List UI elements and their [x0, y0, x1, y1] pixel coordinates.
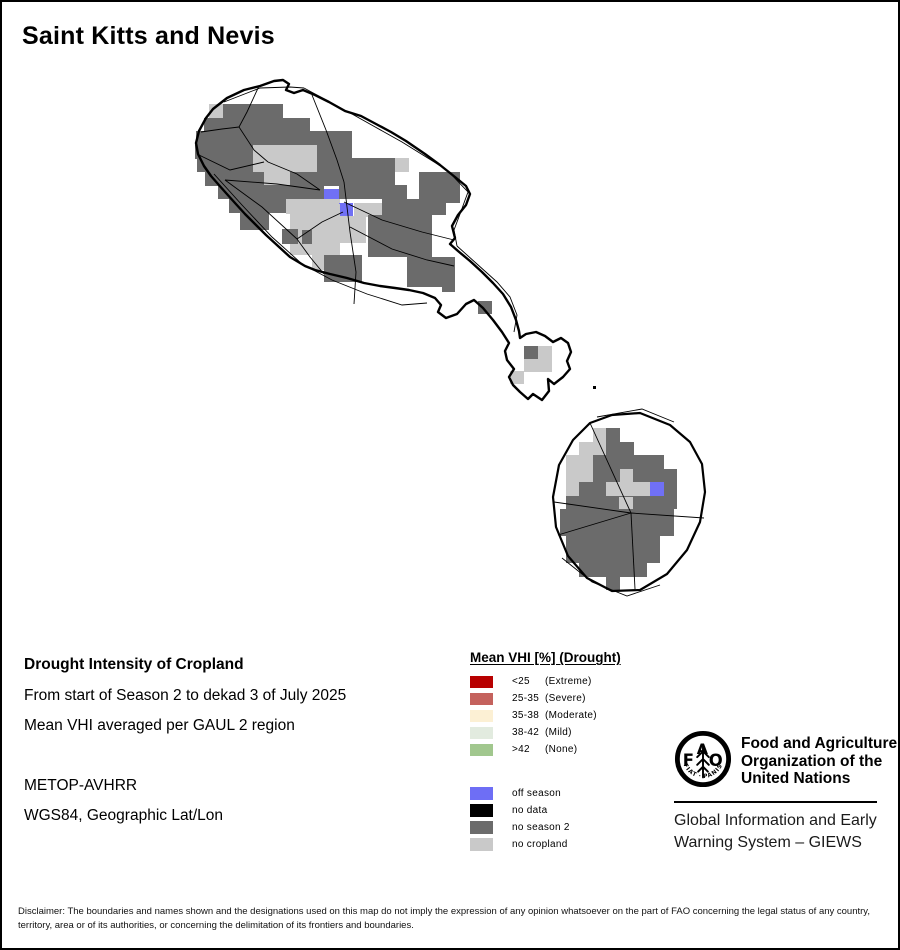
- legend: Mean VHI [%] (Drought) <25(Extreme)25-35…: [470, 650, 680, 853]
- giews-name: Global Information and Early Warning Sys…: [674, 810, 877, 853]
- raster-cell-no-season-2: [524, 346, 538, 359]
- legend-row: no data: [470, 802, 680, 819]
- raster-cell-no-season-2: [204, 118, 310, 132]
- legend-row: 35-38(Moderate): [470, 707, 680, 724]
- raster-cell-no-season-2: [419, 172, 460, 186]
- raster-cell-no-season-2: [240, 205, 269, 230]
- legend-color-swatch: [470, 821, 493, 834]
- raster-cell-no-cropland: [566, 469, 593, 482]
- raster-cell-off-season: [650, 482, 664, 496]
- raster-cell-no-cropland: [395, 158, 409, 172]
- legend-row: 25-35(Severe): [470, 690, 680, 707]
- raster-cell-no-cropland: [354, 203, 382, 217]
- raster-cell-no-season-2: [633, 469, 677, 482]
- fao-org-line2: Organization of the: [741, 753, 897, 771]
- legend-class-range: <25: [512, 676, 545, 687]
- raster-cell-no-season-2: [579, 482, 606, 496]
- legend-gap: [470, 758, 680, 785]
- legend-class-label: no cropland: [512, 839, 568, 850]
- legend-color-swatch: [470, 727, 493, 739]
- raster-cell-no-season-2: [442, 279, 455, 292]
- raster-cell-no-season-2: [282, 229, 298, 244]
- raster-cell-no-cropland: [606, 482, 650, 496]
- legend-color-swatch: [470, 693, 493, 705]
- raster-cell-no-cropland: [538, 346, 552, 372]
- legend-color-swatch: [470, 838, 493, 851]
- legend-row: no season 2: [470, 819, 680, 836]
- raster-cell-no-cropland: [253, 158, 317, 172]
- raster-cell-no-season-2: [339, 185, 407, 199]
- map-period-line: From start of Season 2 to dekad 3 of Jul…: [24, 687, 346, 705]
- raster-cell-no-season-2: [664, 482, 677, 496]
- raster-cell-no-cropland: [340, 216, 366, 243]
- legend-row: >42(None): [470, 741, 680, 758]
- legend-class-label: no season 2: [512, 822, 570, 833]
- disclaimer-text: Disclaimer: The boundaries and names sho…: [18, 905, 882, 932]
- giews-line2: Warning System – GIEWS: [674, 832, 877, 854]
- fao-org-line1: Food and Agriculture: [741, 735, 897, 753]
- legend-class-range: >42: [512, 744, 545, 755]
- fao-logo-icon: F A O FIAT · PANIS: [674, 730, 732, 788]
- legend-title: Mean VHI [%] (Drought): [470, 650, 680, 665]
- raster-cell-no-season-2: [223, 104, 283, 118]
- map-sensor-line: METOP-AVHRR: [24, 777, 137, 795]
- raster-cell-no-season-2: [593, 455, 664, 469]
- legend-season-classes: off seasonno datano season 2no cropland: [470, 785, 680, 853]
- legend-row: no cropland: [470, 836, 680, 853]
- legend-class-label: (Mild): [545, 727, 572, 738]
- raster-cell-no-season-2: [566, 536, 660, 550]
- raster-cell-no-season-2: [218, 185, 324, 199]
- legend-row: 38-42(Mild): [470, 724, 680, 741]
- legend-class-label: (None): [545, 744, 577, 755]
- raster-cell-no-season-2: [606, 428, 620, 442]
- legend-row: <25(Extreme): [470, 673, 680, 690]
- fao-org-name: Food and Agriculture Organization of the…: [741, 735, 897, 788]
- legend-class-range: 35-38: [512, 710, 545, 721]
- legend-drought-classes: <25(Extreme)25-35(Severe)35-38(Moderate)…: [470, 673, 680, 758]
- raster-cell-no-data: [593, 386, 596, 389]
- legend-class-label: off season: [512, 788, 561, 799]
- legend-color-swatch: [470, 710, 493, 722]
- map-subject-heading: Drought Intensity of Cropland: [24, 656, 244, 674]
- giews-line1: Global Information and Early: [674, 810, 877, 832]
- fao-separator-line: [674, 801, 877, 803]
- raster-cell-no-season-2: [317, 158, 395, 172]
- raster-cell-no-season-2: [566, 550, 660, 563]
- raster-cell-no-season-2: [290, 172, 395, 186]
- raster-cell-no-cropland: [524, 359, 538, 372]
- legend-class-label: (Moderate): [545, 710, 597, 721]
- legend-class-label: (Severe): [545, 693, 586, 704]
- legend-class-label: no data: [512, 805, 547, 816]
- raster-cell-no-cropland: [566, 482, 579, 496]
- raster-cell-no-season-2: [579, 563, 647, 577]
- legend-class-range: 38-42: [512, 727, 545, 738]
- legend-class-label: (Extreme): [545, 676, 592, 687]
- map-projection-line: WGS84, Geographic Lat/Lon: [24, 807, 223, 825]
- raster-cell-no-cropland: [619, 497, 633, 510]
- map-method-line: Mean VHI averaged per GAUL 2 region: [24, 717, 295, 735]
- legend-row: off season: [470, 785, 680, 802]
- legend-color-swatch: [470, 787, 493, 800]
- map-page: Saint Kitts and Nevis Drought Intensity …: [0, 0, 900, 950]
- fao-org-line3: United Nations: [741, 770, 897, 788]
- raster-cell-no-cropland: [593, 428, 606, 442]
- legend-color-swatch: [470, 676, 493, 688]
- raster-cell-no-season-2: [382, 199, 446, 215]
- legend-color-swatch: [470, 804, 493, 817]
- raster-cell-no-cropland: [566, 455, 593, 469]
- raster-cell-no-season-2: [606, 442, 634, 455]
- legend-class-range: 25-35: [512, 693, 545, 704]
- raster-cell-no-cropland: [620, 469, 633, 482]
- legend-color-swatch: [470, 744, 493, 756]
- raster-cell-no-season-2: [368, 215, 432, 257]
